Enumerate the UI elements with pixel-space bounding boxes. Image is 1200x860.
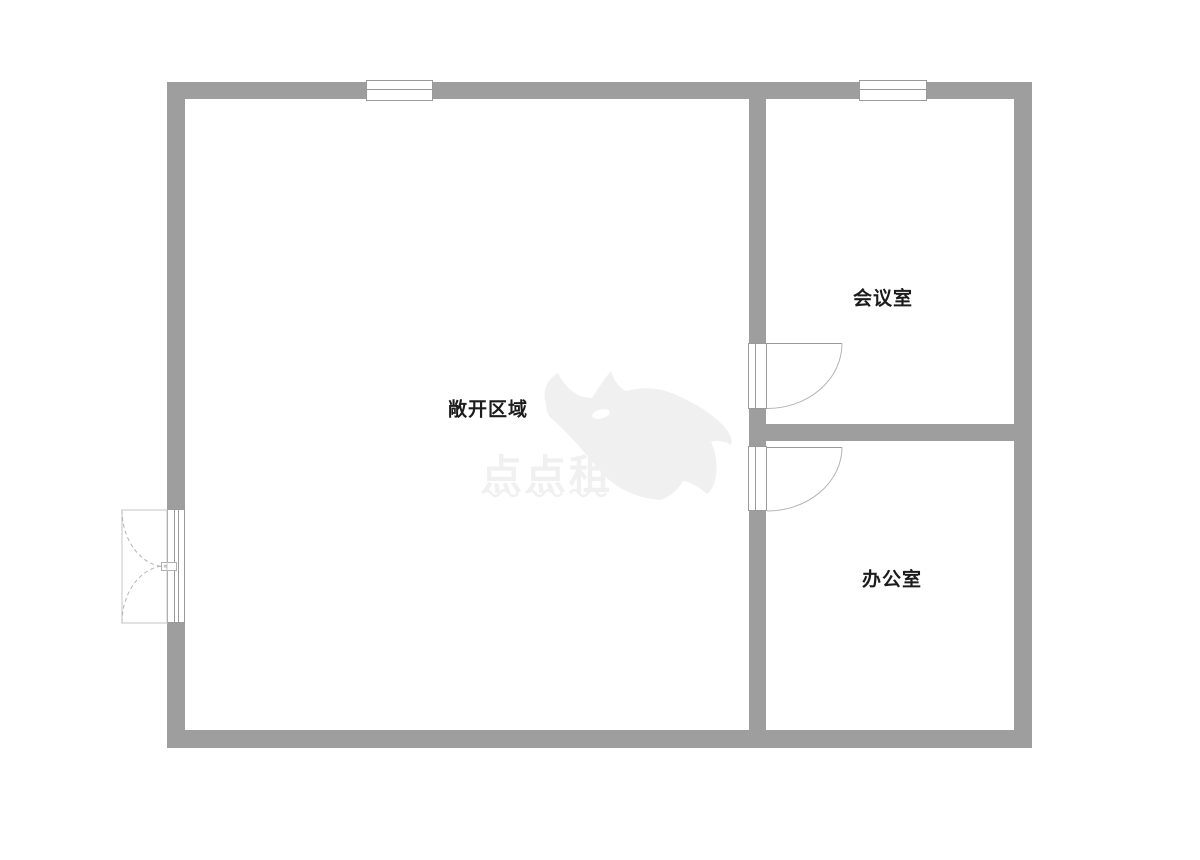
door-leaf-line	[755, 344, 756, 408]
wall-interior-vertical-upper	[749, 99, 766, 343]
window-open-area	[366, 80, 433, 101]
wall-exterior-left	[167, 82, 185, 748]
door-frame-meeting-room	[748, 343, 767, 409]
wall-interior-vertical-middle	[749, 408, 766, 447]
door-frame-office	[748, 446, 767, 511]
room-label-meeting-room: 会议室	[853, 284, 913, 311]
floor-plan: 点点租	[0, 0, 1200, 860]
window-sill-line	[860, 89, 926, 90]
wall-exterior-bottom	[167, 730, 1032, 748]
wall-exterior-right	[1014, 82, 1032, 748]
entrance-door-meeting-notch	[161, 562, 177, 571]
door-swing-meeting-room	[767, 344, 842, 409]
room-label-open-area: 敞开区域	[448, 395, 528, 422]
wall-interior-horizontal	[766, 424, 1014, 441]
window-meeting-room	[859, 80, 927, 101]
rhino-eye	[591, 407, 611, 420]
rhino-logo-icon	[545, 371, 732, 500]
door-leaf-line	[178, 510, 179, 622]
window-sill-line	[367, 89, 432, 90]
watermark-brand-text: 点点租	[481, 452, 613, 498]
wall-interior-vertical-lower	[749, 511, 766, 730]
door-swing-office	[767, 448, 842, 512]
watermark-wavy-underline	[482, 490, 606, 496]
room-label-office: 办公室	[862, 565, 922, 592]
door-leaf-line	[755, 447, 756, 510]
